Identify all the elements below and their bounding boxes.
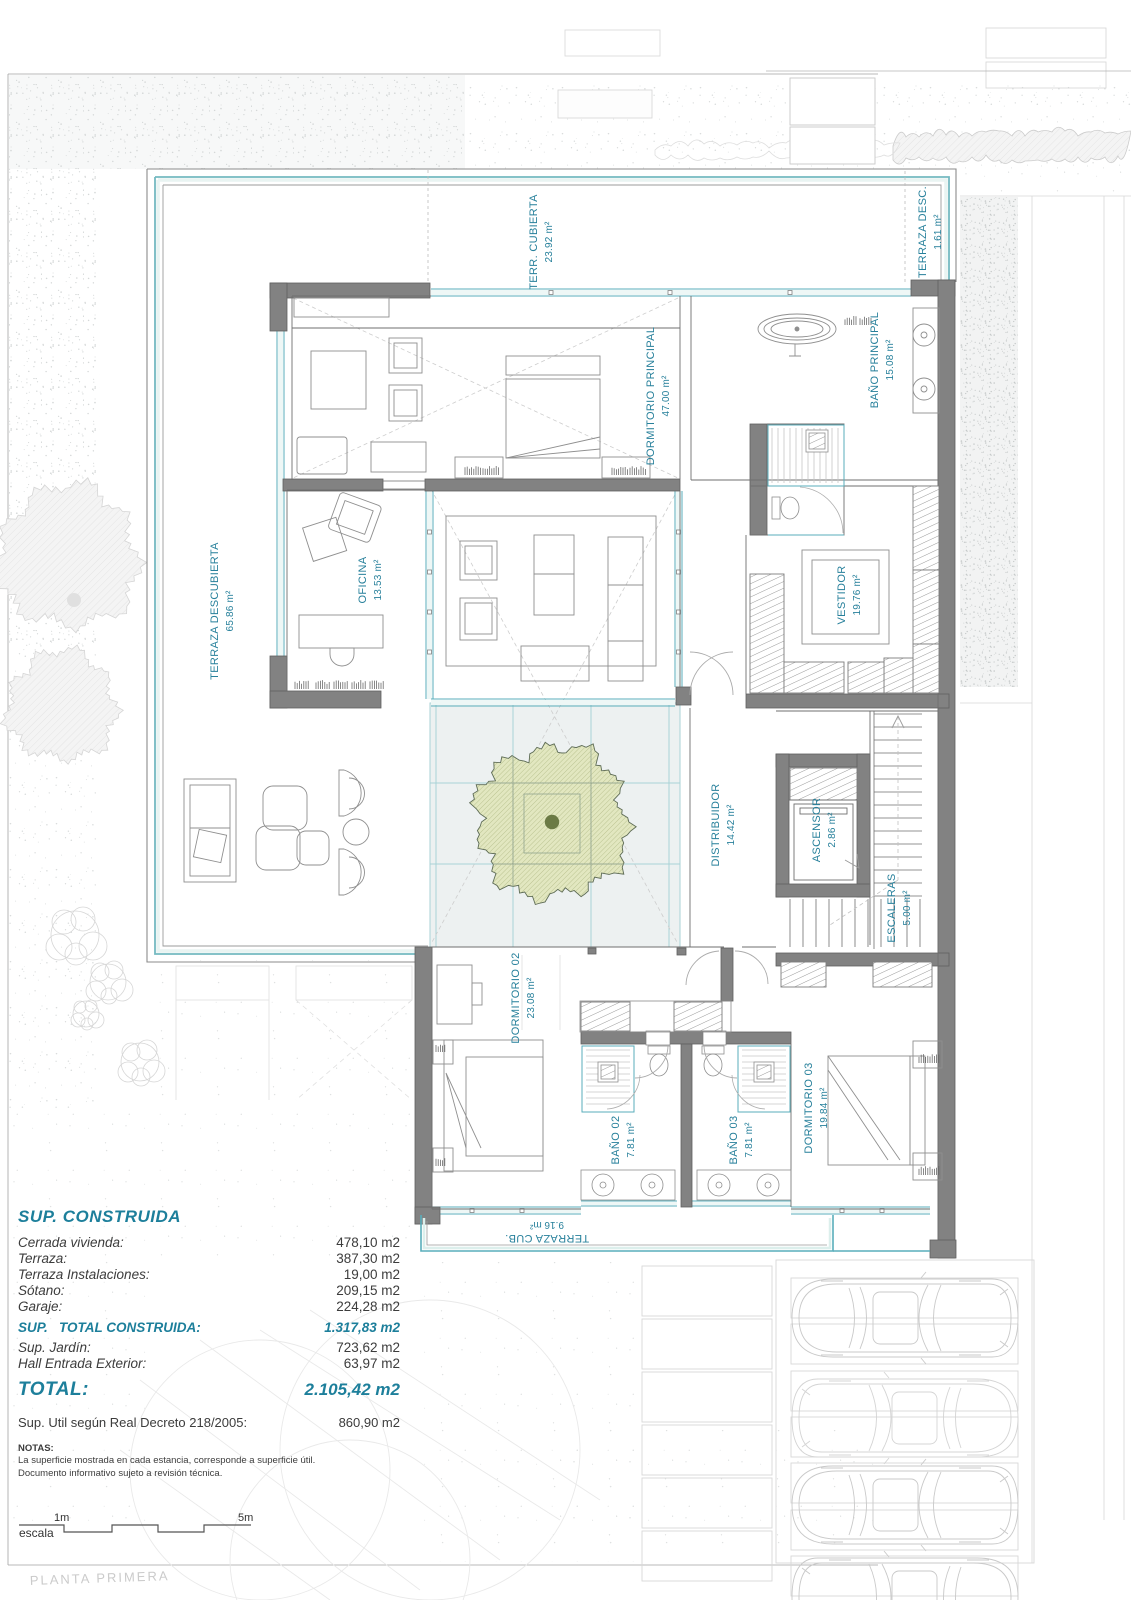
svg-text:65.86 m²: 65.86 m² (225, 590, 236, 632)
svg-text:7.81 m²: 7.81 m² (626, 1122, 637, 1158)
svg-text:TOTAL:: TOTAL: (18, 1379, 89, 1400)
svg-text:Sup. Util según Real Decreto 2: Sup. Util según Real Decreto 218/2005: (18, 1415, 247, 1430)
svg-text:723,62 m2: 723,62 m2 (336, 1340, 400, 1355)
svg-text:TERRAZA CUB.: TERRAZA CUB. (505, 1232, 589, 1244)
svg-text:47.00 m²: 47.00 m² (661, 375, 672, 417)
svg-text:SUP. CONSTRUIDA: SUP. CONSTRUIDA (18, 1207, 181, 1226)
svg-text:7.81 m²: 7.81 m² (744, 1122, 755, 1158)
svg-text:387,30 m2: 387,30 m2 (336, 1251, 400, 1266)
svg-text:224,28 m2: 224,28 m2 (336, 1299, 400, 1314)
svg-text:9.16 m²: 9.16 m² (529, 1219, 564, 1230)
svg-text:Terraza:: Terraza: (18, 1251, 67, 1266)
svg-text:OFICINA: OFICINA (357, 556, 369, 603)
svg-text:Sótano:: Sótano: (18, 1283, 65, 1298)
svg-text:DORMITORIO 02: DORMITORIO 02 (510, 952, 522, 1043)
svg-text:478,10 m2: 478,10 m2 (336, 1235, 400, 1250)
svg-text:2.86 m²: 2.86 m² (827, 812, 838, 848)
svg-text:1.61 m²: 1.61 m² (933, 214, 944, 250)
svg-text:Documento informativo sujeto a: Documento informativo sujeto a revisión … (18, 1468, 222, 1479)
svg-text:19,00 m2: 19,00 m2 (344, 1267, 400, 1282)
svg-text:ASCENSOR: ASCENSOR (811, 798, 823, 863)
svg-text:23.92 m²: 23.92 m² (544, 221, 555, 263)
svg-text:BAÑO 02: BAÑO 02 (609, 1116, 622, 1165)
svg-text:ESCALERAS: ESCALERAS (886, 873, 898, 942)
svg-text:5m: 5m (238, 1512, 253, 1524)
svg-text:DORMITORIO PRINCIPAL: DORMITORIO PRINCIPAL (645, 327, 657, 466)
svg-text:NOTAS:: NOTAS: (18, 1443, 54, 1454)
svg-text:DORMITORIO 03: DORMITORIO 03 (803, 1062, 815, 1153)
svg-text:Hall Entrada Exterior:: Hall Entrada Exterior: (18, 1356, 147, 1371)
svg-text:BAÑO 03: BAÑO 03 (727, 1116, 740, 1165)
svg-text:5.00 m²: 5.00 m² (902, 890, 913, 926)
svg-text:1.317,83 m2: 1.317,83 m2 (324, 1320, 400, 1335)
svg-text:2.105,42 m2: 2.105,42 m2 (304, 1380, 401, 1399)
svg-text:209,15 m2: 209,15 m2 (336, 1283, 400, 1298)
svg-text:23.08 m²: 23.08 m² (526, 977, 537, 1019)
svg-text:15.08 m²: 15.08 m² (885, 339, 896, 381)
svg-text:TERRAZA DESC.: TERRAZA DESC. (917, 186, 929, 278)
svg-text:Terraza Instalaciones:: Terraza Instalaciones: (18, 1267, 150, 1282)
svg-text:VESTIDOR: VESTIDOR (836, 565, 848, 624)
svg-text:14.42 m²: 14.42 m² (726, 804, 737, 846)
svg-text:Sup. Jardín:: Sup. Jardín: (18, 1340, 91, 1355)
svg-text:La superficie mostrada en cada: La superficie mostrada en cada estancia,… (18, 1455, 315, 1466)
svg-text:TERR. CUBIERTA: TERR. CUBIERTA (528, 194, 540, 290)
svg-text:DISTRIBUIDOR: DISTRIBUIDOR (710, 783, 722, 866)
svg-text:860,90 m2: 860,90 m2 (339, 1415, 400, 1430)
svg-text:63,97 m2: 63,97 m2 (344, 1356, 400, 1371)
svg-text:Garaje:: Garaje: (18, 1299, 63, 1314)
svg-text:1m: 1m (54, 1512, 69, 1524)
svg-text:SUP. TOTAL CONSTRUIDA:: SUP. TOTAL CONSTRUIDA: (18, 1320, 201, 1335)
svg-text:TERRAZA DESCUBIERTA: TERRAZA DESCUBIERTA (209, 542, 221, 680)
svg-text:13.53 m²: 13.53 m² (373, 559, 384, 601)
svg-text:escala: escala (19, 1526, 54, 1540)
svg-text:BAÑO PRINCIPAL: BAÑO PRINCIPAL (868, 312, 881, 408)
svg-text:19.76 m²: 19.76 m² (852, 574, 863, 616)
svg-text:19.84 m²: 19.84 m² (819, 1087, 830, 1129)
svg-text:Cerrada vivienda:: Cerrada vivienda: (18, 1235, 124, 1250)
